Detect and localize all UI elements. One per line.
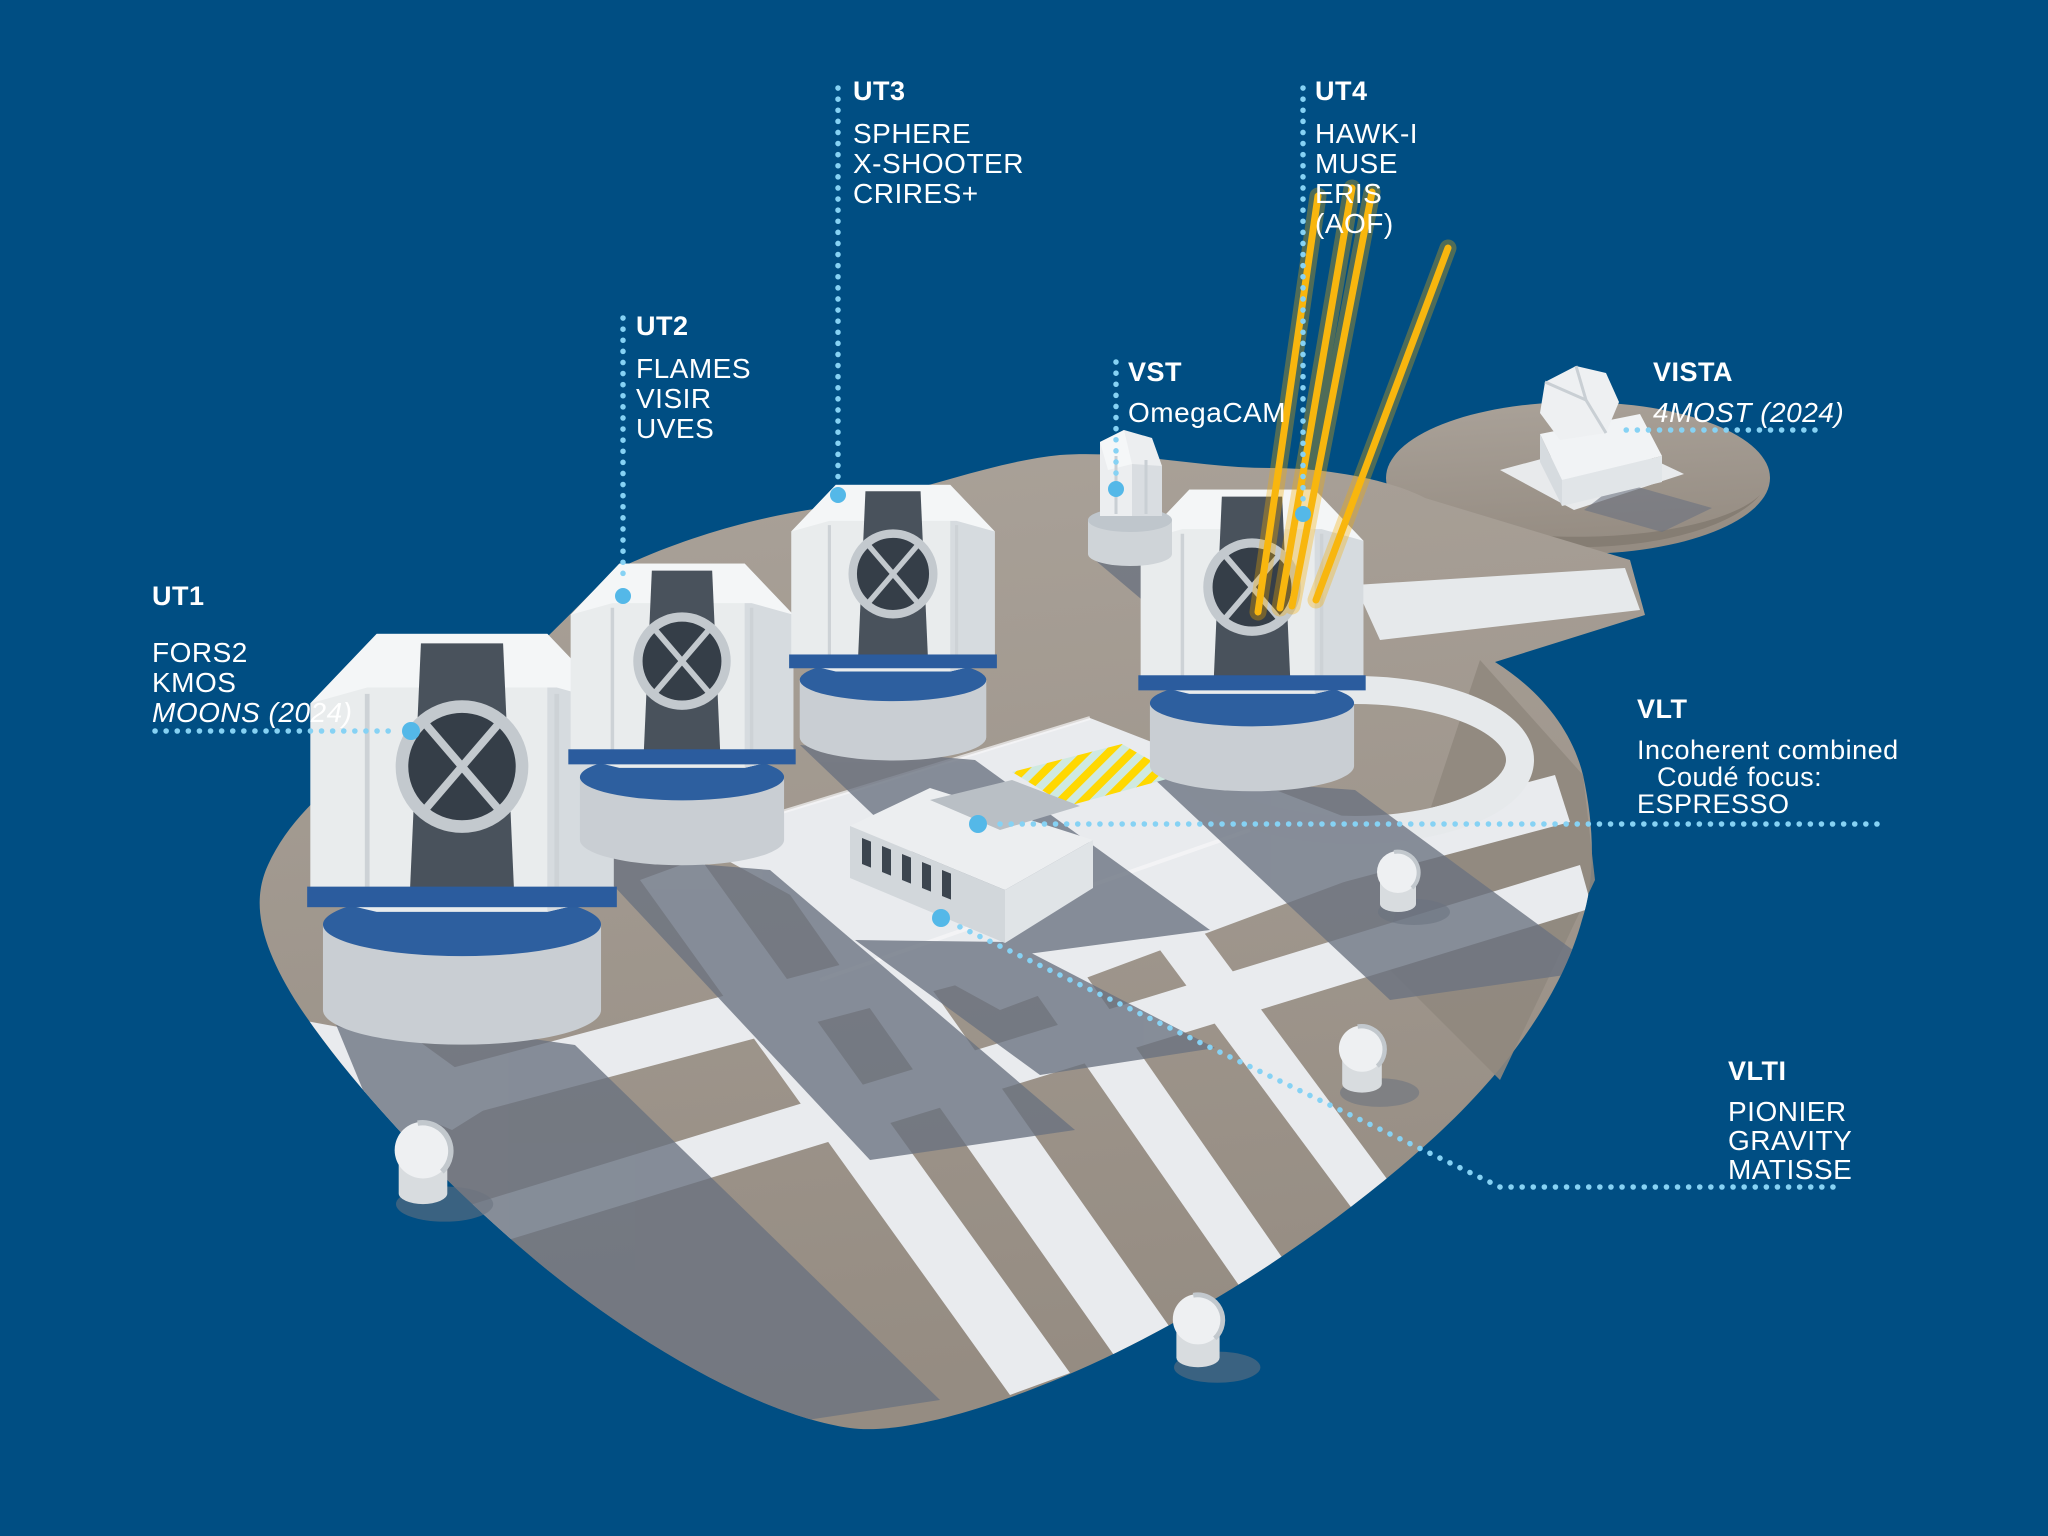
telescope-ut1: [307, 634, 617, 1045]
instrument-pionier: PIONIER: [1728, 1097, 1852, 1126]
label-ut4: UT4 HAWK-I MUSE ERIS (AOF): [1315, 78, 1418, 239]
instrument-crires: CRIRES+: [853, 179, 1024, 209]
vlt-coude-line2: Coudé focus:: [1637, 764, 1899, 791]
label-vista: VISTA 4MOST (2024): [1653, 359, 1844, 428]
label-vlt-title: VLT: [1637, 696, 1899, 723]
label-ut3-title: UT3: [853, 78, 1024, 105]
instrument-aof: (AOF): [1315, 209, 1418, 239]
label-vst-title: VST: [1128, 359, 1286, 386]
label-vst: VST OmegaCAM: [1128, 359, 1286, 428]
instrument-xshooter: X-SHOOTER: [853, 149, 1024, 179]
instrument-visir: VISIR: [636, 384, 751, 414]
label-ut3: UT3 SPHERE X-SHOOTER CRIRES+: [853, 78, 1024, 209]
label-vista-title: VISTA: [1653, 359, 1844, 386]
vlt-coude-line1: Incoherent combined: [1637, 737, 1899, 764]
telescope-ut2: [568, 564, 795, 866]
instrument-matisse: MATISSE: [1728, 1155, 1852, 1184]
label-ut4-title: UT4: [1315, 78, 1418, 105]
instrument-kmos: KMOS: [152, 668, 353, 698]
label-vlti-title: VLTI: [1728, 1058, 1852, 1085]
instrument-espresso: ESPRESSO: [1637, 791, 1899, 818]
instrument-muse: MUSE: [1315, 149, 1418, 179]
instrument-moons: MOONS (2024): [152, 698, 353, 728]
label-ut2-title: UT2: [636, 313, 751, 340]
instrument-uves: UVES: [636, 414, 751, 444]
telescope-ut3: [789, 485, 997, 761]
label-vlt: VLT Incoherent combined Coudé focus: ESP…: [1637, 696, 1899, 818]
instrument-eris: ERIS: [1315, 179, 1418, 209]
instrument-hawki: HAWK-I: [1315, 119, 1418, 149]
observatory-diagram: UT3 SPHERE X-SHOOTER CRIRES+ UT4 HAWK-I …: [0, 0, 2048, 1536]
instrument-omegacam: OmegaCAM: [1128, 398, 1286, 428]
label-ut1: UT1 FORS2 KMOS MOONS (2024): [152, 583, 353, 728]
instrument-fors2: FORS2: [152, 638, 353, 668]
instrument-flames: FLAMES: [636, 354, 751, 384]
label-ut2: UT2 FLAMES VISIR UVES: [636, 313, 751, 444]
instrument-sphere: SPHERE: [853, 119, 1024, 149]
instrument-4most: 4MOST (2024): [1653, 398, 1844, 428]
label-vlti: VLTI PIONIER GRAVITY MATISSE: [1728, 1058, 1852, 1184]
instrument-gravity: GRAVITY: [1728, 1126, 1852, 1155]
label-ut1-title: UT1: [152, 583, 353, 610]
